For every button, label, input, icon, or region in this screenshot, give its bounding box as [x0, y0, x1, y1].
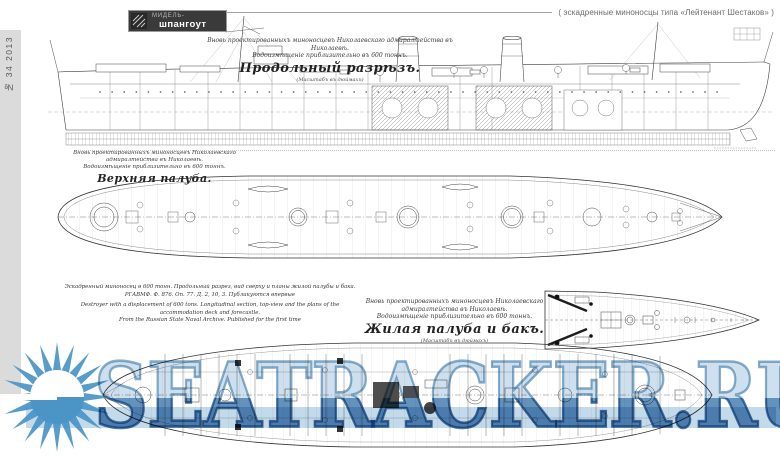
- caption-line: Водоизмѣщеніе приблизительно въ 600 тонн…: [62, 164, 247, 171]
- caption-longitudinal-section: Вновь проектированныхъ миноносцевъ Никол…: [205, 37, 455, 83]
- forecastle-plan-drawing: [535, 283, 780, 358]
- watermark-text-lower: SEATRACKER.RU: [94, 352, 780, 441]
- magazine-logo: МИДЕЛЬ- шпангоут: [129, 11, 226, 31]
- caption-line: Водоизмѣщеніе приблизительно въ 600 тонн…: [205, 52, 455, 60]
- logo-hatch-icon: [131, 13, 147, 29]
- series-title: ( эскадренные миноносцы типа «Лейтенант …: [556, 8, 774, 17]
- caption-line: Вновь проектированныхъ миноносцевъ Никол…: [352, 298, 557, 313]
- caption-scale: (Масштабъ въ дюймахъ): [352, 338, 557, 344]
- watermark-sea-band: [26, 407, 776, 428]
- credit-block: Эскадренный миноносец в 600 тонн. Продол…: [60, 284, 360, 325]
- credit-ru-line2: РГАВМФ. Ф. 876. Оп. 77. Д. 2, 10, 3. Пуб…: [60, 292, 360, 300]
- logo-word-shpangout: шпангоут: [159, 19, 206, 30]
- caption-title: Жилая палуба и бакъ.: [352, 322, 557, 337]
- caption-scale: (Масштабъ въ дюймахъ): [205, 77, 455, 83]
- issue-number: № 34 2013: [4, 36, 14, 93]
- caption-line: Вновь проектированныхъ миноносцевъ Никол…: [205, 37, 455, 52]
- credit-en-line2: From the Russian State Naval Archive. Pu…: [60, 317, 360, 325]
- issue-sidebar: № 34 2013: [0, 30, 21, 398]
- logo-words: МИДЕЛЬ- шпангоут: [149, 11, 226, 31]
- magazine-page: № 34 2013 МИДЕЛЬ- шпангоут ( эскадренные…: [0, 0, 780, 458]
- watermark-text: SEATRACKER.RU: [94, 352, 780, 441]
- caption-title: Продольный разрѣзъ.: [205, 61, 455, 76]
- header-rule: [226, 12, 552, 13]
- caption-upper-deck: Вновь проектированныхъ миноносцевъ Никол…: [62, 150, 247, 185]
- caption-line: Вновь проектированныхъ миноносцевъ Никол…: [62, 150, 247, 164]
- caption-title: Верхняя палуба.: [62, 172, 247, 185]
- caption-accommodation-deck: Вновь проектированныхъ миноносцевъ Никол…: [352, 298, 557, 344]
- accommodation-deck-plan-drawing: [85, 332, 730, 454]
- credit-en-line1: Destroyer with a displacement of 600 ton…: [60, 302, 360, 317]
- credit-ru-line1: Эскадренный миноносец в 600 тонн. Продол…: [60, 284, 360, 292]
- caption-line: Водоизмѣщеніе приблизительно въ 600 тонн…: [352, 313, 557, 321]
